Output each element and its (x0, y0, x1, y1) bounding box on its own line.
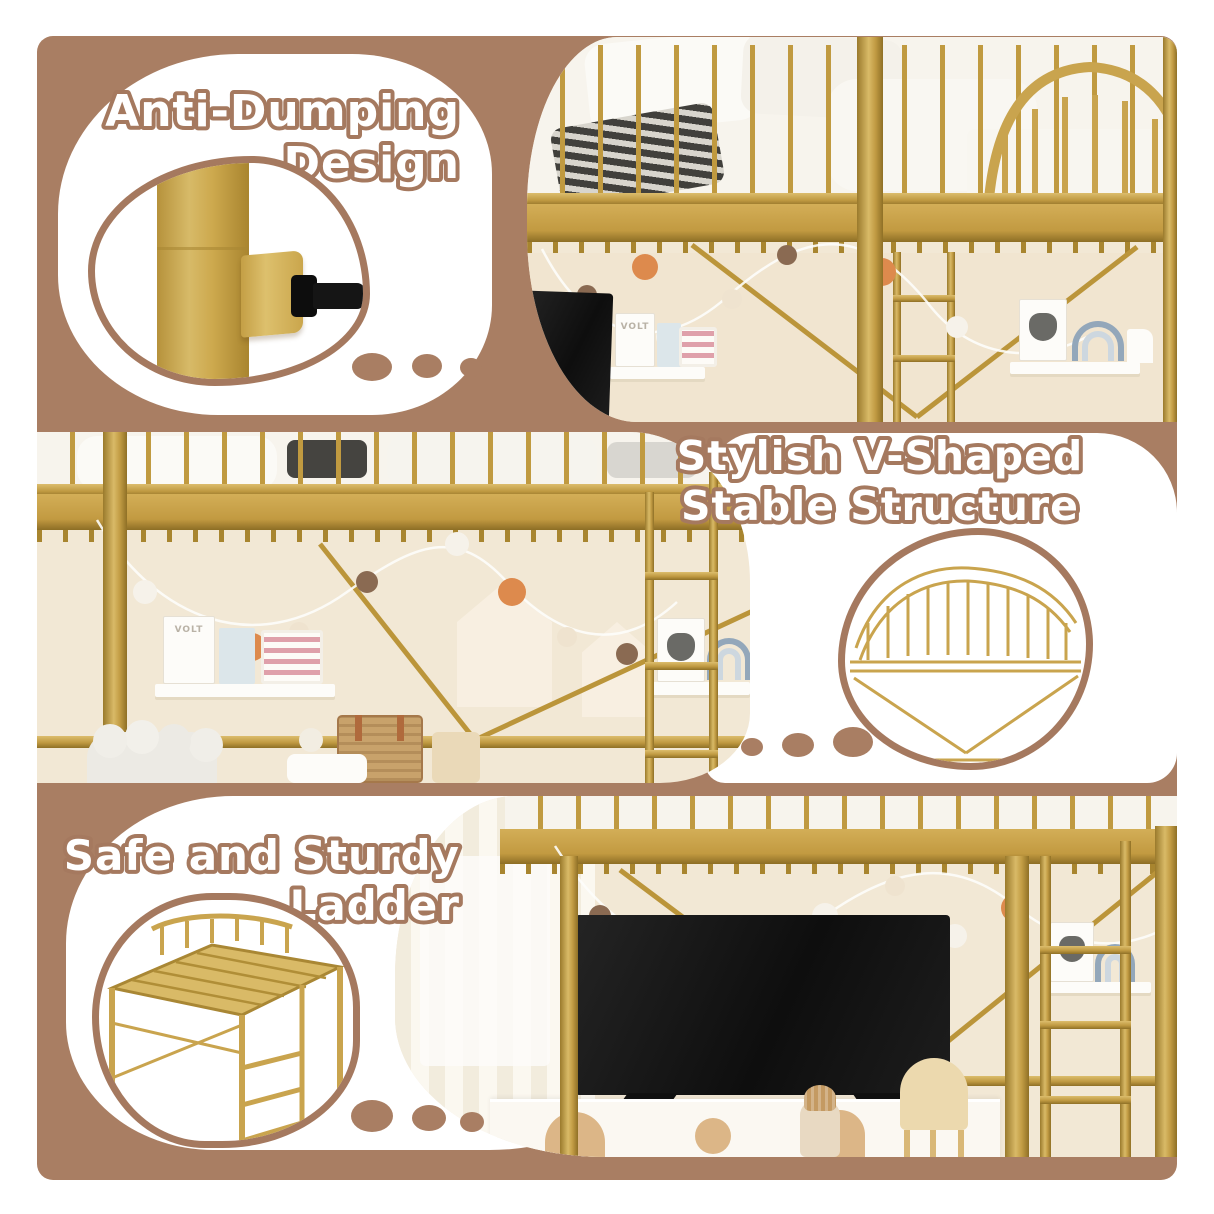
teddy-bear (299, 728, 323, 752)
abacus-toy (679, 327, 717, 367)
white-tray (287, 754, 367, 783)
bed-post (1163, 37, 1177, 422)
ladder-frame-drawing (92, 893, 360, 1148)
thought-dot-small (460, 358, 482, 377)
bolt-shaft-icon (313, 283, 365, 309)
book-volt: VOLT (163, 616, 215, 684)
dog-picture-frame (1019, 299, 1067, 361)
dog-picture-frame (657, 618, 705, 682)
doll-beanie (804, 1085, 836, 1111)
bed-pole (157, 156, 249, 386)
ladder-rail (1120, 841, 1131, 1157)
guardrail-spindles (37, 432, 750, 488)
abacus-toy (261, 630, 323, 684)
thought-dot-medium (782, 733, 814, 757)
dog-art (667, 633, 695, 662)
book (219, 628, 255, 684)
thought-dot-large (833, 727, 873, 757)
svg-text:Anti-Dumping: Anti-Dumping (105, 86, 460, 137)
ladder-rung (1040, 946, 1131, 954)
thought-dot-large (351, 1100, 393, 1132)
thought-dot-small (460, 1112, 484, 1132)
thought-dot-large (352, 353, 392, 381)
bed-post (857, 37, 883, 422)
bed-post (1155, 826, 1177, 1157)
cabinet-decor (695, 1118, 731, 1154)
dog-art (1029, 313, 1057, 341)
book (657, 323, 681, 367)
tv-screen (527, 290, 613, 422)
trunk-strap (355, 715, 362, 741)
ladder-rail (645, 492, 654, 783)
book-volt: VOLT (615, 313, 655, 367)
detail-blob-v-structure (838, 528, 1093, 770)
feature-photo-bed-top: VOLT (527, 37, 1177, 422)
thought-dot-medium (412, 1105, 446, 1131)
v-structure-drawing (838, 528, 1093, 770)
house-toy (1127, 329, 1153, 363)
ladder-rung (1040, 1021, 1131, 1029)
ladder-rail (1040, 856, 1051, 1157)
bed-post (560, 856, 578, 1157)
guardrail-spindles (505, 796, 1177, 829)
wall-shelf (155, 684, 335, 697)
puffy-chair-bubbles (93, 724, 127, 758)
pole-seam (157, 247, 249, 250)
bed-post (1005, 856, 1029, 1157)
tv-screen (575, 915, 950, 1095)
product-infographic: VOLT Anti-Dumping Design (0, 0, 1214, 1214)
svg-text:Stylish V-Shaped: Stylish V-Shaped (677, 432, 1083, 480)
wall-shelf (1043, 982, 1151, 993)
feature-photo-structure: VOLT (37, 432, 750, 783)
wall-shelf (610, 367, 705, 379)
ladder-rung (1040, 1096, 1131, 1104)
cat-chair-legs (904, 1130, 910, 1157)
fabric-basket (432, 732, 480, 783)
ladder-rung (645, 572, 718, 580)
svg-text:Safe and Sturdy: Safe and Sturdy (64, 831, 460, 880)
wall-shelf (1010, 362, 1140, 374)
garland (37, 492, 750, 672)
feature-photo-room: VOLT (395, 796, 1177, 1157)
svg-text:Stable Structure: Stable Structure (681, 482, 1079, 530)
section-title-v-shaped: Stylish V-Shaped Stable Structure (700, 430, 1060, 530)
wall-shelf (650, 682, 750, 695)
thought-dot-small (741, 738, 763, 756)
trunk-strap (397, 715, 404, 741)
ladder-rung (645, 750, 718, 758)
cat-chair-back (900, 1058, 968, 1130)
ladder-rung (645, 662, 718, 670)
thought-dot-medium (412, 354, 442, 378)
detail-blob-ladder (92, 893, 360, 1148)
